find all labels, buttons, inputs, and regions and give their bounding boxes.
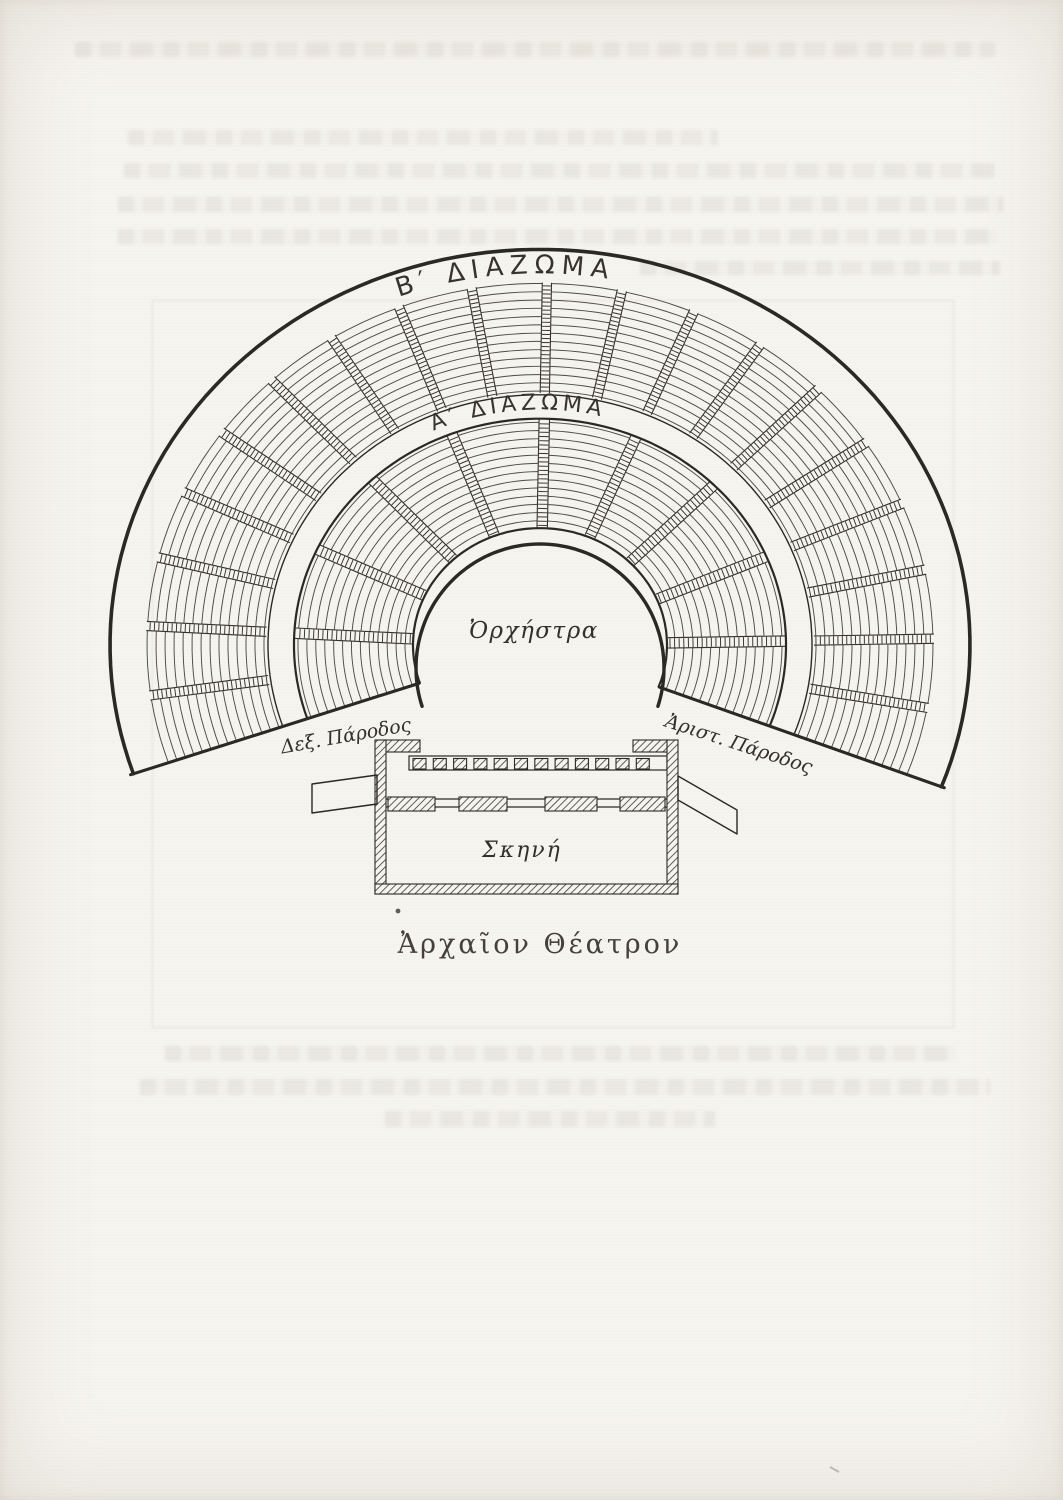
lower-diazoma-label: Α′ ΔΙΑΖΩΜΑ: [426, 390, 608, 436]
figure-caption: Ἀρχαῖον Θέατρον: [397, 929, 683, 960]
skene-bottom-wall: [375, 884, 678, 894]
stage-complex: [312, 740, 839, 1472]
orchestra-label: Ὀρχήστρα: [469, 618, 599, 644]
theatre-plan-figure: Β′ ΔΙΑΖΩΜΑ Α′ ΔΙΑΖΩΜΑ Ὀρχήστρα Σκηνή Δεξ…: [0, 0, 1063, 1500]
upper-diazoma-label: Β′ ΔΙΑΖΩΜΑ: [392, 250, 618, 303]
column-base: [555, 759, 568, 770]
skene-front-wall-segment: [545, 797, 597, 811]
ink-speck: [830, 1467, 839, 1472]
left-parodos-label: Ἀριστ. Πάροδος: [661, 710, 816, 779]
column-base: [596, 759, 609, 770]
column-base: [474, 759, 487, 770]
paraskenion-left-top-wall: [385, 740, 420, 752]
column-base: [636, 759, 649, 770]
column-base: [454, 759, 467, 770]
skene-front-wall-segment: [459, 797, 507, 811]
stairway-lower-tier-steps: [587, 440, 639, 537]
skene-front-wall-segment: [388, 797, 435, 811]
column-base: [575, 759, 588, 770]
stage-ramp-left: [312, 775, 377, 813]
column-base: [413, 759, 426, 770]
paraskenion-right-top-wall: [633, 740, 668, 752]
ink-dot: [396, 909, 401, 914]
scanned-book-page: Β′ ΔΙΑΖΩΜΑ Α′ ΔΙΑΖΩΜΑ Ὀρχήστρα Σκηνή Δεξ…: [0, 0, 1063, 1500]
stairway-upper-tier-bed: [146, 621, 266, 636]
paraskenion-right-side-wall: [667, 740, 678, 894]
stairway-upper-tier-bed: [268, 377, 356, 464]
stage-ramp-right: [678, 776, 737, 834]
skene-front-wall-segment: [620, 797, 665, 811]
stage-label: Σκηνή: [481, 838, 562, 863]
stairway-upper-tier-bed: [791, 499, 905, 551]
column-base: [515, 759, 528, 770]
column-base: [535, 759, 548, 770]
paraskenion-left-side-wall: [375, 740, 386, 894]
column-base: [433, 759, 446, 770]
column-base: [494, 759, 507, 770]
cavea-seating-area: [110, 250, 970, 788]
column-base: [616, 759, 629, 770]
proscenium-colonnade: [413, 759, 649, 770]
